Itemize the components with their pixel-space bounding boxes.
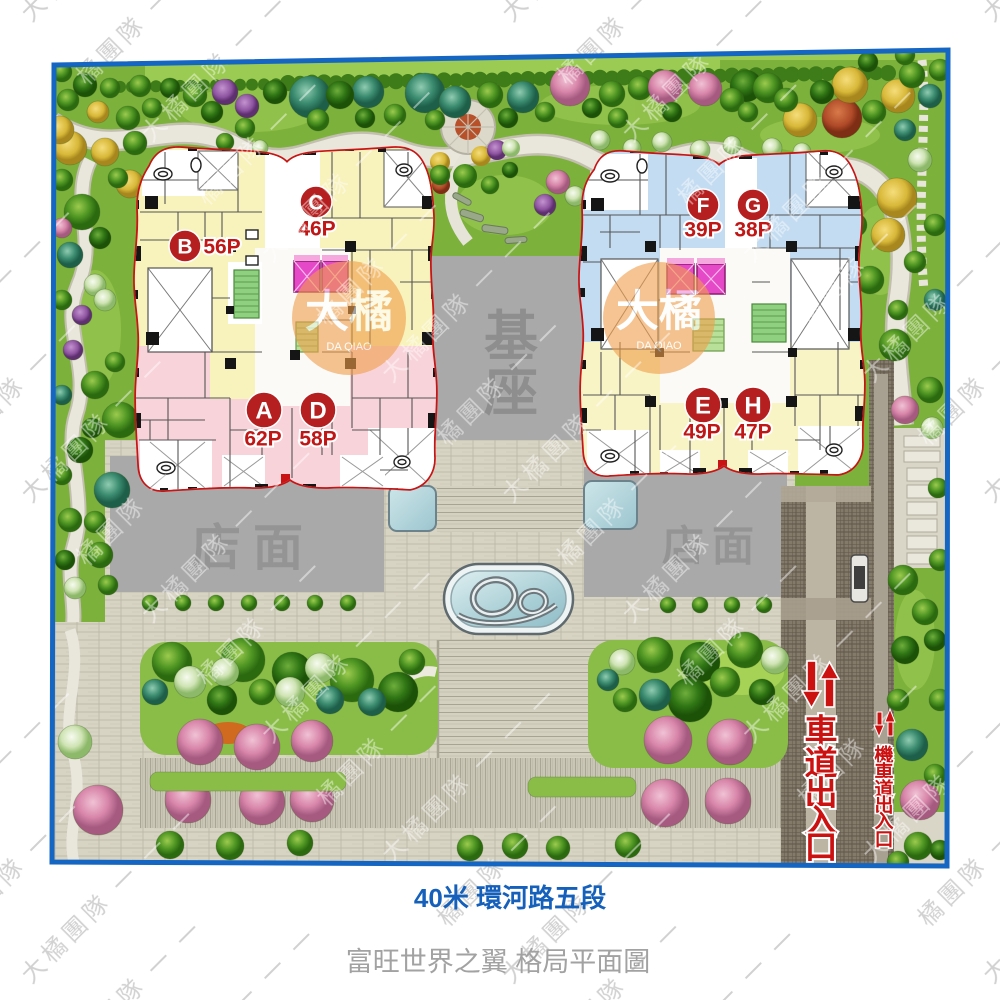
- svg-text:口: 口: [805, 829, 838, 866]
- svg-text:口: 口: [874, 830, 893, 851]
- svg-text:40米 環河路五段: 40米 環河路五段: [414, 883, 606, 913]
- svg-text:富旺世界之翼 格局平面圖: 富旺世界之翼 格局平面圖: [346, 947, 651, 977]
